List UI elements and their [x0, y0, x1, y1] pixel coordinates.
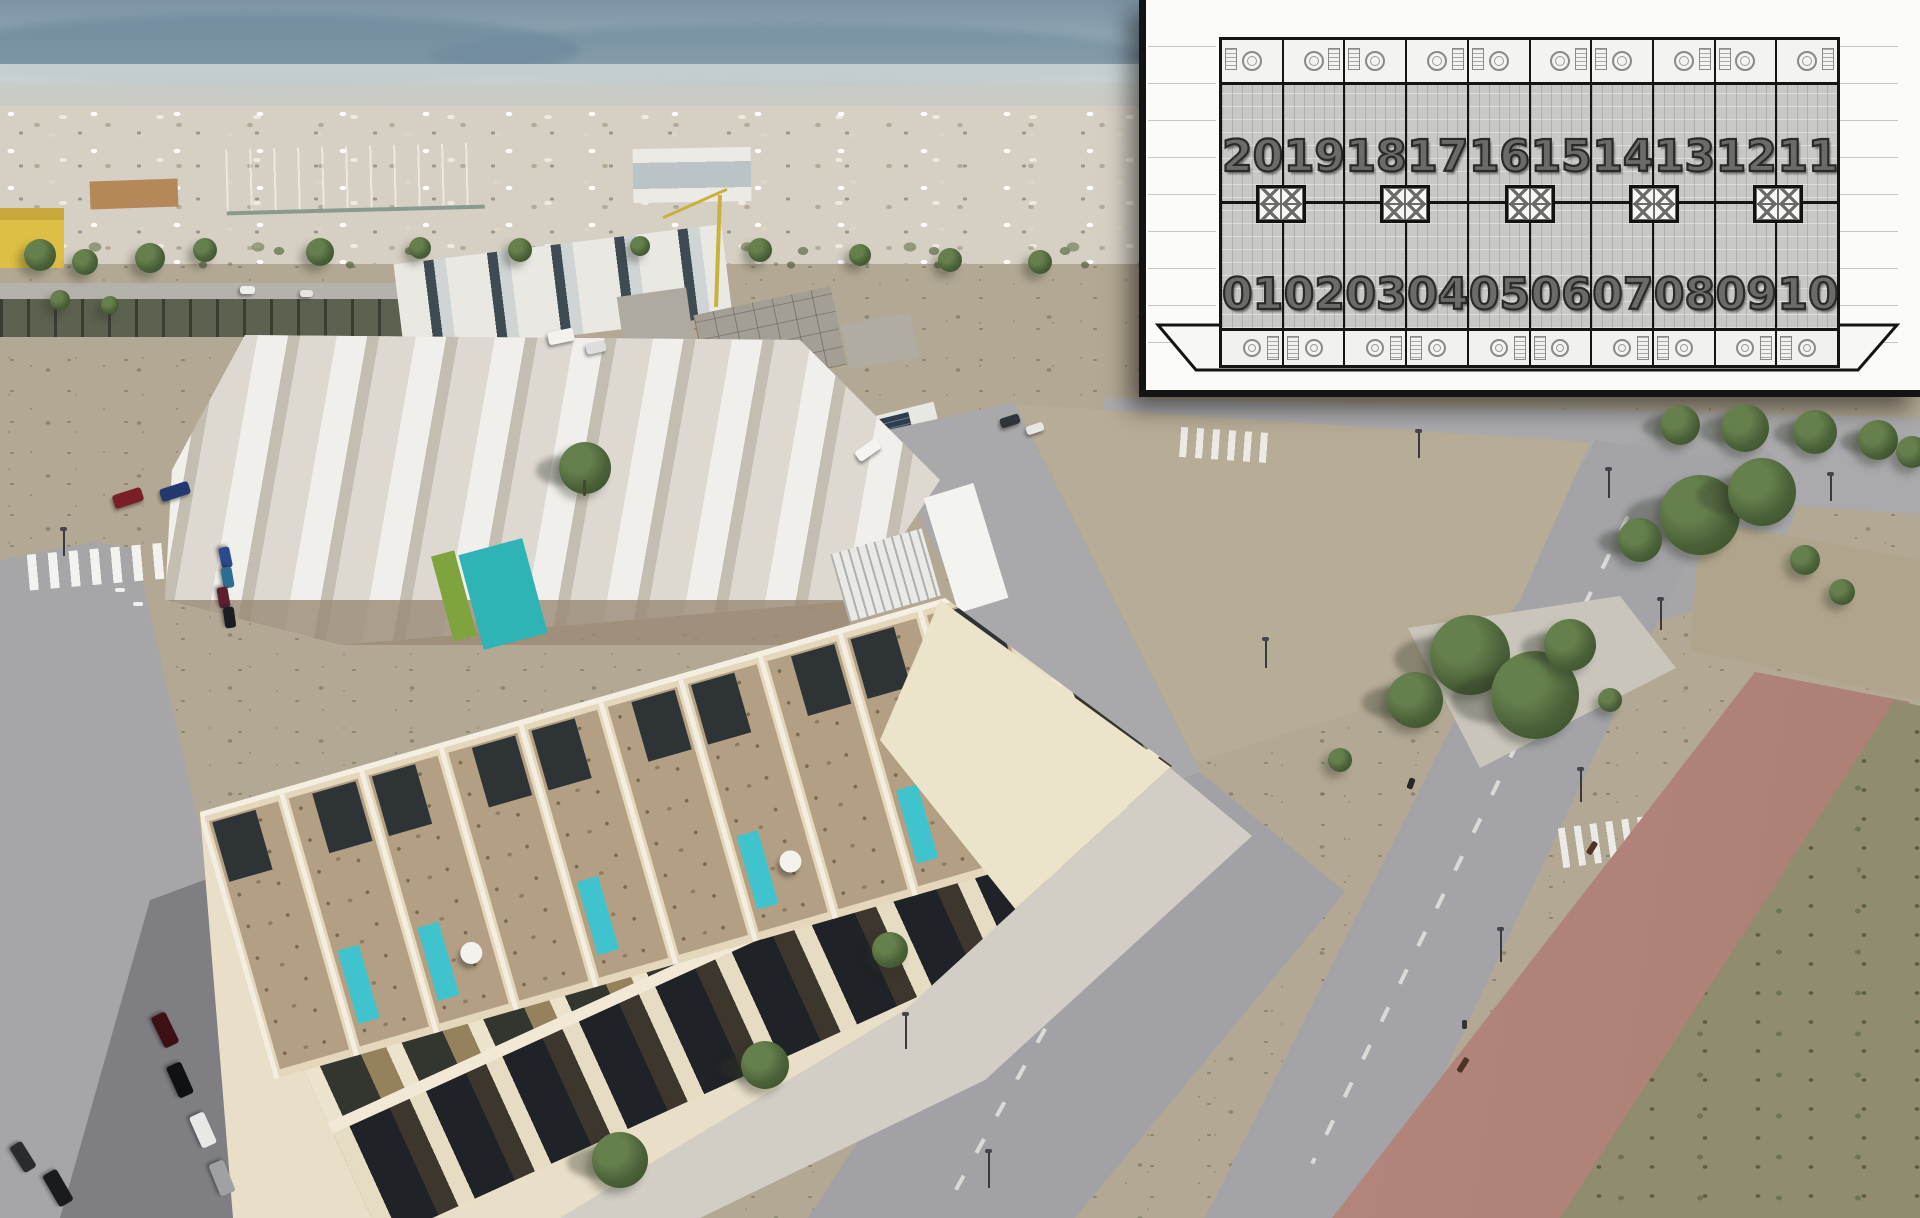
upper-terrace	[1407, 40, 1467, 85]
crossed-box-icon	[1629, 185, 1679, 223]
lower-terrace	[1592, 331, 1654, 365]
stairs-icon	[1699, 48, 1711, 70]
shaft-cell	[1508, 204, 1530, 220]
round-table-icon	[1735, 51, 1755, 71]
street-lamp	[1580, 770, 1582, 802]
round-table-icon	[1366, 339, 1384, 357]
shaft-cell	[1405, 188, 1427, 204]
unit-number-upper: 13	[1654, 133, 1714, 181]
tree	[938, 248, 962, 272]
green-roof-warehouse	[225, 143, 485, 216]
stairs-icon	[1472, 48, 1484, 70]
stairs-icon	[1390, 336, 1402, 360]
round-table-icon	[1551, 339, 1569, 357]
unit-number-lower: 09	[1716, 271, 1776, 319]
tree	[1793, 410, 1837, 454]
car	[240, 286, 255, 294]
shaft-cell	[1756, 188, 1778, 204]
unit-number-upper: 19	[1284, 133, 1344, 181]
stairs-icon	[1657, 336, 1669, 360]
round-table-icon	[1797, 51, 1817, 71]
unit-number-lower: 08	[1654, 271, 1714, 319]
tree	[508, 238, 532, 262]
shaft-cell	[1530, 188, 1552, 204]
unit-number-lower: 06	[1531, 271, 1591, 319]
lower-terrace	[1654, 331, 1716, 365]
tree	[1544, 619, 1596, 671]
unit-number-upper: 18	[1345, 133, 1405, 181]
plan-unit-column: 1902	[1284, 40, 1346, 328]
tree	[1618, 518, 1662, 562]
lower-terrace	[1716, 331, 1778, 365]
unit-number-lower: 03	[1345, 271, 1405, 319]
tree	[748, 238, 772, 262]
road-arrow	[115, 588, 125, 592]
stairs-icon	[1575, 48, 1587, 70]
upper-terrace	[1716, 40, 1776, 85]
unit-number-upper: 17	[1407, 133, 1467, 181]
street-lamp	[1830, 475, 1832, 501]
tree	[1598, 688, 1622, 712]
upper-terrace	[1345, 40, 1405, 85]
tree	[50, 290, 70, 310]
tree	[1328, 748, 1352, 772]
round-table-icon	[1613, 339, 1631, 357]
tree	[24, 239, 56, 271]
stairs-icon	[1780, 336, 1792, 360]
palm-trunk	[583, 480, 586, 496]
stairs-icon	[1822, 48, 1834, 70]
tree	[630, 236, 650, 256]
crossed-box-icon	[1753, 185, 1803, 223]
tree	[1829, 579, 1855, 605]
tree	[409, 237, 431, 259]
plan-unit-column: 1209	[1716, 40, 1778, 328]
upper-terrace	[1531, 40, 1591, 85]
shaft-cell	[1632, 204, 1654, 220]
round-table-icon	[1427, 51, 1447, 71]
crossed-box-icon	[1505, 185, 1555, 223]
tree	[1387, 672, 1443, 728]
tree	[1896, 436, 1920, 468]
stairs-icon	[1410, 336, 1422, 360]
shaft-cell	[1756, 204, 1778, 220]
tree	[849, 244, 871, 266]
tree	[1728, 458, 1796, 526]
tree	[872, 932, 908, 968]
stairs-icon	[1719, 48, 1731, 70]
round-table-icon	[1365, 51, 1385, 71]
round-table-icon	[1243, 339, 1261, 357]
plan-unit-column: 1605	[1469, 40, 1531, 328]
shaft-cell	[1508, 188, 1530, 204]
unit-number-upper: 12	[1716, 133, 1776, 181]
unit-number-lower: 07	[1592, 271, 1652, 319]
street-lamp	[1608, 470, 1610, 498]
ochre-building	[90, 178, 179, 209]
upper-terrace	[1592, 40, 1652, 85]
shaft-cell	[1778, 204, 1800, 220]
unit-number-lower: 02	[1284, 271, 1344, 319]
tree	[135, 243, 165, 273]
car	[300, 290, 313, 297]
shaft-cell	[1632, 188, 1654, 204]
shaft-cell	[1778, 188, 1800, 204]
shaft-cell	[1259, 204, 1281, 220]
shaft-cell	[1281, 188, 1303, 204]
lower-terrace	[1345, 331, 1407, 365]
street-lamp	[1660, 600, 1662, 630]
aerial-marketing-image: 2001190218031704160515061407130812091110	[0, 0, 1920, 1218]
round-table-icon	[1428, 339, 1446, 357]
crossed-box-icon	[1256, 185, 1306, 223]
tree	[741, 1041, 789, 1089]
unit-number-lower: 05	[1469, 271, 1529, 319]
upper-terrace	[1284, 40, 1344, 85]
unit-number-lower: 04	[1407, 271, 1467, 319]
shaft-cell	[1383, 204, 1405, 220]
stairs-icon	[1225, 48, 1237, 70]
stairs-icon	[1267, 336, 1279, 360]
lower-terrace	[1469, 331, 1531, 365]
stairs-icon	[1348, 48, 1360, 70]
shaft-cell	[1405, 204, 1427, 220]
road-arrow	[133, 602, 143, 606]
street-lamp	[1418, 432, 1420, 458]
shaft-cell	[1383, 188, 1405, 204]
unit-number-lower: 01	[1222, 271, 1282, 319]
plan-unit-column: 1308	[1654, 40, 1716, 328]
stairs-icon	[1287, 336, 1299, 360]
stairs-icon	[1760, 336, 1772, 360]
shaft-cell	[1654, 204, 1676, 220]
round-table-icon	[1674, 51, 1694, 71]
shaft-cell	[1530, 204, 1552, 220]
stairs-icon	[1452, 48, 1464, 70]
plan-building-block: 2001190218031704160515061407130812091110	[1219, 37, 1840, 331]
street-lamp	[63, 530, 65, 556]
unit-number-upper: 20	[1222, 133, 1282, 181]
upper-terrace	[1654, 40, 1714, 85]
upper-terrace	[1222, 40, 1282, 85]
round-table-icon	[1242, 51, 1262, 71]
round-table-icon	[1304, 51, 1324, 71]
street-lamp	[1265, 640, 1267, 668]
plan-unit-column: 1110	[1777, 40, 1837, 328]
street-lamp	[988, 1152, 990, 1188]
lower-terrace	[1222, 331, 1284, 365]
unit-number-upper: 11	[1777, 133, 1837, 181]
pedestrian	[1462, 1020, 1467, 1029]
tree	[1790, 545, 1820, 575]
round-table-icon	[1612, 51, 1632, 71]
shaft-cell	[1281, 204, 1303, 220]
lower-terrace	[1531, 331, 1593, 365]
tree	[72, 249, 98, 275]
tree	[1028, 250, 1052, 274]
plan-unit-column: 1803	[1345, 40, 1407, 328]
street-lamp	[905, 1015, 907, 1049]
round-table-icon	[1490, 339, 1508, 357]
tree	[1858, 420, 1898, 460]
round-table-icon	[1550, 51, 1570, 71]
tree	[1721, 404, 1769, 452]
shaft-cell	[1654, 188, 1676, 204]
round-table-icon	[1305, 339, 1323, 357]
upper-terrace	[1777, 40, 1837, 85]
round-table-icon	[1798, 339, 1816, 357]
stairs-icon	[1514, 336, 1526, 360]
crossed-box-icon	[1380, 185, 1430, 223]
round-table-icon	[1736, 339, 1754, 357]
plan-unit-column: 2001	[1222, 40, 1284, 328]
unit-number-lower: 10	[1777, 271, 1837, 319]
round-table-icon	[1675, 339, 1693, 357]
unit-number-upper: 14	[1592, 133, 1652, 181]
tree	[1660, 405, 1700, 445]
street-lamp	[1500, 930, 1502, 962]
lower-terrace	[1284, 331, 1346, 365]
unit-number-upper: 16	[1469, 133, 1529, 181]
stairs-icon	[1534, 336, 1546, 360]
site-plan-overlay: 2001190218031704160515061407130812091110	[1139, 0, 1920, 397]
plan-unit-column: 1407	[1592, 40, 1654, 328]
stairs-icon	[1637, 336, 1649, 360]
white-office-building	[633, 147, 752, 203]
tree	[101, 296, 119, 314]
tree	[193, 238, 217, 262]
round-table-icon	[1489, 51, 1509, 71]
plan-lower-terraces	[1219, 331, 1840, 368]
tree	[592, 1132, 648, 1188]
plan-unit-column: 1704	[1407, 40, 1469, 328]
stairs-icon	[1595, 48, 1607, 70]
tree	[306, 238, 334, 266]
shaft-cell	[1259, 188, 1281, 204]
upper-terrace	[1469, 40, 1529, 85]
crosswalk	[1179, 427, 1271, 463]
stairs-icon	[1328, 48, 1340, 70]
lower-terrace	[1777, 331, 1837, 365]
plan-unit-column: 1506	[1531, 40, 1593, 328]
unit-number-upper: 15	[1531, 133, 1591, 181]
lower-terrace	[1407, 331, 1469, 365]
